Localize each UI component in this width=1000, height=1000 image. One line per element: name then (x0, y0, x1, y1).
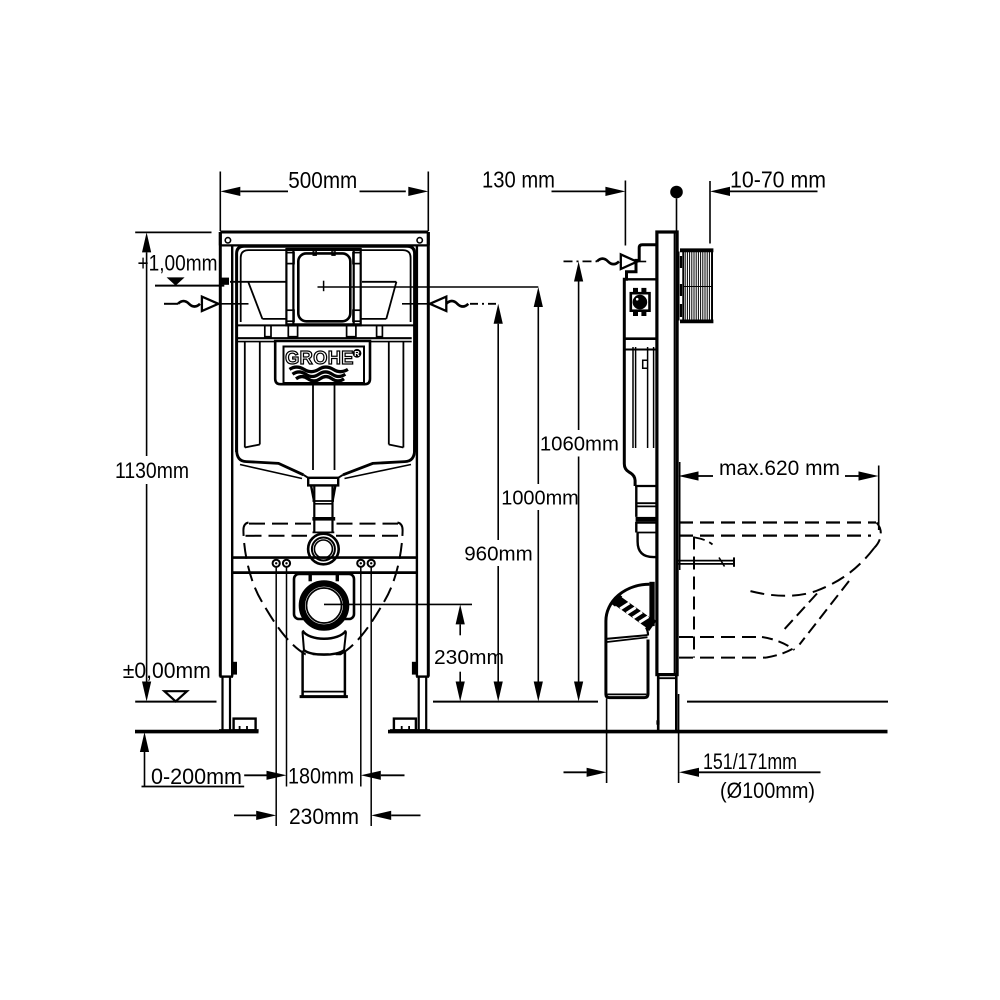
svg-text:500mm: 500mm (288, 167, 357, 193)
svg-text:1130mm: 1130mm (115, 458, 189, 483)
svg-text:GROHE: GROHE (285, 348, 354, 368)
svg-text:130 mm: 130 mm (482, 167, 555, 193)
svg-text:max.620 mm: max.620 mm (719, 457, 840, 480)
svg-text:10-70 mm: 10-70 mm (730, 167, 826, 193)
svg-text:1000mm: 1000mm (501, 488, 579, 510)
svg-text:180mm: 180mm (288, 764, 354, 789)
svg-text:230mm: 230mm (434, 647, 504, 669)
svg-text:151/171mm: 151/171mm (703, 749, 797, 774)
svg-text:230mm: 230mm (289, 804, 359, 829)
svg-text:0-200mm: 0-200mm (151, 764, 242, 789)
svg-text:(Ø100mm): (Ø100mm) (720, 778, 815, 803)
svg-text:1060mm: 1060mm (540, 434, 619, 456)
svg-text:R: R (354, 349, 360, 358)
svg-text:±0,00mm: ±0,00mm (123, 658, 211, 683)
svg-text:960mm: 960mm (464, 544, 533, 566)
svg-text:+1,00mm: +1,00mm (138, 251, 218, 276)
